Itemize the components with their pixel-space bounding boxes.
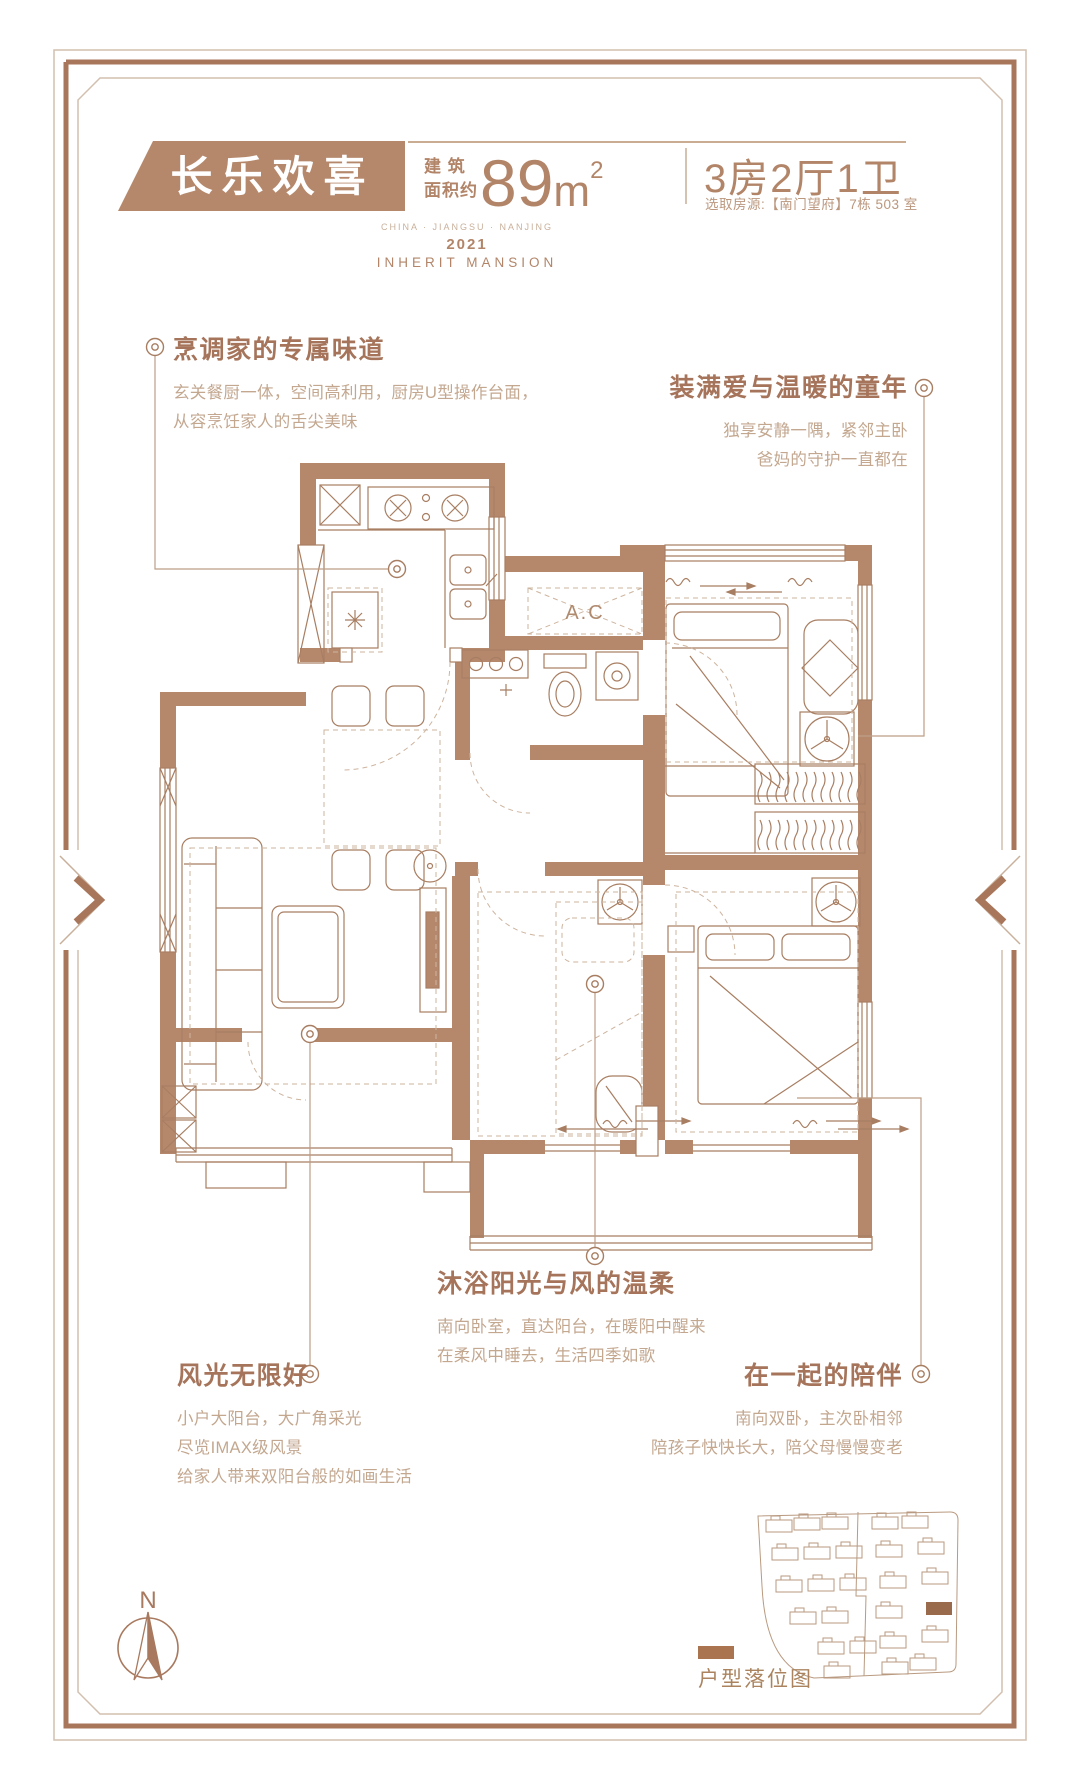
- bedroom3-outline: [478, 892, 642, 1136]
- snowflake-icon: [345, 610, 365, 630]
- legend-label: 户型落位图: [698, 1663, 813, 1693]
- nightstand: [668, 926, 694, 952]
- legend-swatch: [698, 1646, 734, 1659]
- area-unit: m: [553, 167, 590, 216]
- note-view-line1: 小户大阳台，大广角采光: [177, 1405, 412, 1434]
- stove: [368, 487, 494, 529]
- right-chevron-icon: [976, 856, 1020, 944]
- column: [636, 1106, 658, 1156]
- note-kitchen: 烹调家的专属味道 玄关餐厨一体，空间高利用，厨房U型操作台面， 从容烹饪家人的舌…: [173, 330, 538, 437]
- double-bed: [698, 926, 858, 1104]
- balconies: [162, 1086, 872, 1250]
- brand-en: INHERIT MANSION: [352, 255, 582, 270]
- note-children-line2: 爸妈的守护一直都在: [558, 446, 908, 475]
- balcony-door-arc: [248, 1042, 306, 1100]
- location-en: CHINA · JIANGSU · NANJING: [352, 222, 582, 232]
- floor-plan: A.C: [160, 463, 908, 1250]
- coffee-table: [272, 906, 344, 1008]
- toilet: [549, 672, 581, 716]
- toilet-tank: [544, 654, 586, 668]
- site-plan: [758, 1512, 958, 1678]
- living-outline: [190, 848, 436, 1084]
- source-note: 选取房源:【南门望府】7栋 503 室: [705, 193, 918, 213]
- area-superscript: 2: [590, 157, 603, 184]
- note-children: 装满爱与温暖的童年 独享安静一隅，紧邻主卧 爸妈的守护一直都在: [558, 368, 908, 475]
- left-chevron-icon: [60, 856, 104, 944]
- note-kitchen-line1: 玄关餐厨一体，空间高利用，厨房U型操作台面，: [173, 379, 538, 408]
- compass-n-label: N: [139, 1587, 156, 1614]
- note-together-line1: 南向双卧，主次卧相邻: [558, 1405, 903, 1434]
- sofa: [182, 838, 262, 1090]
- area-label-line2: 面积约: [424, 179, 478, 203]
- note-view-line2: 尽览IMAX级风景: [177, 1434, 412, 1463]
- bedroom1-outline: [666, 598, 852, 762]
- project-name: 长乐欢喜: [150, 151, 395, 203]
- note-view-line3: 给家人带来双阳台般的如画生活: [177, 1463, 412, 1492]
- note-sunshine-line1: 南向卧室，直达阳台，在暖阳中醒来: [437, 1313, 706, 1342]
- master-bedroom: [668, 878, 860, 1104]
- bedroom3-door-arc: [478, 869, 545, 936]
- entry-door-arc: [342, 662, 450, 770]
- area-number: 89: [480, 146, 553, 220]
- note-view: 风光无限好 小户大阳台，大广角采光 尽览IMAX级风景 给家人带来双阳台般的如画…: [177, 1356, 412, 1492]
- note-kitchen-title: 烹调家的专属味道: [173, 330, 538, 366]
- washer: [596, 652, 638, 700]
- year-label: 2021: [352, 236, 582, 253]
- walls: [160, 463, 872, 1238]
- site-street: [856, 1512, 866, 1676]
- note-view-title: 风光无限好: [177, 1356, 412, 1392]
- note-together-line2: 陪孩子快快长大，陪父母慢慢变老: [558, 1434, 903, 1463]
- note-children-line1: 独享安静一隅，紧邻主卧: [558, 417, 908, 446]
- bed3-outline: [556, 902, 642, 1134]
- area-label-line1: 建 筑: [424, 155, 478, 179]
- north-arrow-icon: [134, 1612, 148, 1680]
- note-sunshine: 沐浴阳光与风的温柔 南向卧室，直达阳台，在暖阳中醒来 在柔风中睡去，生活四季如歌: [437, 1264, 706, 1371]
- kitchen-sink: [450, 555, 486, 585]
- single-bed: [666, 604, 788, 796]
- compass: N: [118, 1587, 178, 1680]
- door-jamb: [340, 648, 352, 662]
- tv: [426, 912, 439, 988]
- wardrobes: [665, 764, 865, 853]
- plant: [802, 640, 858, 696]
- door-jamb: [450, 648, 462, 662]
- highlighted-building: [926, 1602, 952, 1615]
- area-value: 89m2: [480, 138, 603, 235]
- dining-table: [324, 730, 440, 846]
- ac-label: A.C: [565, 602, 604, 624]
- floorplan-poster: A.C N: [0, 0, 1080, 1785]
- master-outline: [676, 892, 858, 1132]
- side-table: [414, 850, 446, 882]
- note-kitchen-line2: 从容烹饪家人的舌尖美味: [173, 408, 538, 437]
- note-children-title: 装满爱与温暖的童年: [558, 368, 908, 404]
- bath-door-arc: [470, 753, 530, 813]
- area-label: 建 筑 面积约: [424, 155, 478, 203]
- bedroom-children: [666, 604, 858, 796]
- note-together-title: 在一起的陪伴: [558, 1356, 903, 1392]
- note-together: 在一起的陪伴 南向双卧，主次卧相邻 陪孩子快快长大，陪父母慢慢变老: [558, 1356, 903, 1463]
- bedside-chair: [804, 620, 858, 714]
- note-sunshine-title: 沐浴阳光与风的温柔: [437, 1264, 706, 1300]
